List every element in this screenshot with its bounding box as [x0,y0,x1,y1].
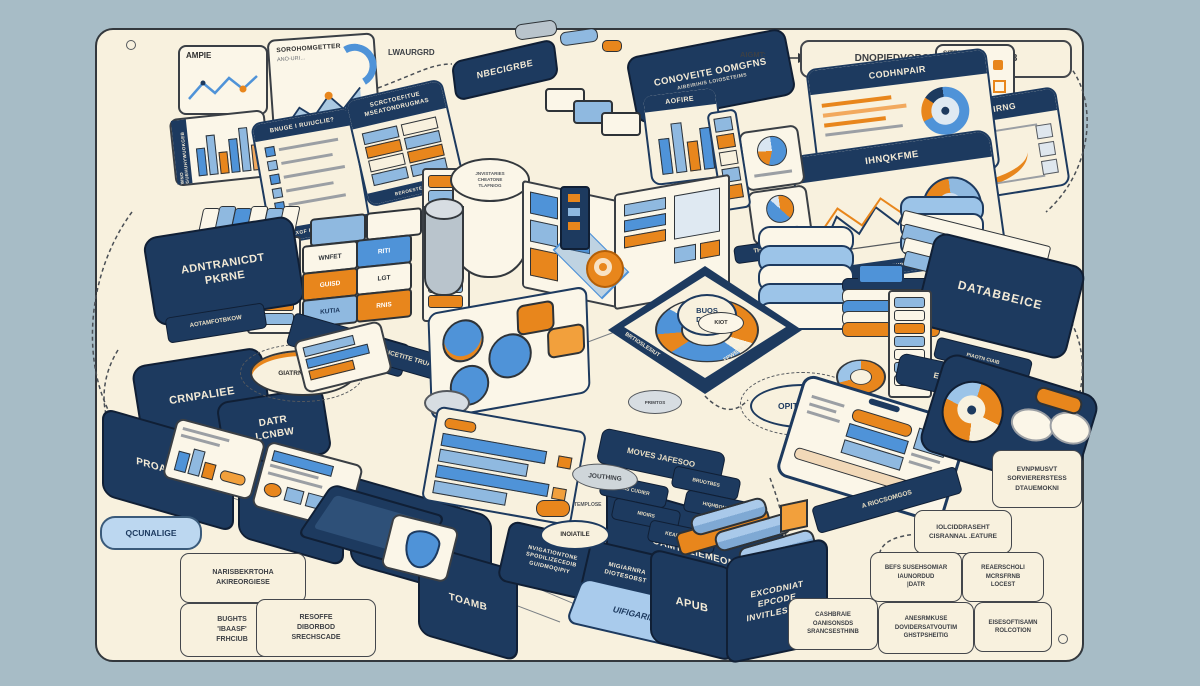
window-card [624,229,666,248]
check-row [272,187,284,199]
pie-icon [764,193,796,225]
reaer-line3: LOCEST [991,581,1015,589]
naris-line2: AKIREORGIESE [216,578,270,588]
eisesoftisamn-note: EISESOFTISAMN ROLCOTION [974,602,1052,652]
befs-line1: BEFS SUSEHSOMIAR [885,564,947,572]
doc-orange-icon [993,80,1006,93]
iolcid-line2: CISRANNAL .EATURE [929,532,997,541]
reaerscholi-note: REAERSCHOLI MCRSFRNB LOCEST [962,552,1044,602]
iolcid-line1: IOLCIDDRASEHT [936,523,989,532]
shield-icon [401,527,443,572]
ampie-label: AMPIE [186,51,211,60]
cash-line1: CASHBRAIE [815,611,851,619]
resoffe-note: RESOFFE DIBORBOD SRECHSCADE [256,599,376,657]
cylinder-small-cap [424,198,464,220]
evnp-line3: DTAUEMOKNI [1015,484,1059,493]
check-row [264,146,276,158]
anes-line3: GHSTPSHEITIG [904,632,949,640]
bughts-line2: 'IBAASF' [217,625,246,635]
server-column [560,186,590,250]
evnpmusvt-note: EVNPMUSVT SORVIERERSTESS DTAUEMOKNI [992,450,1082,508]
aigmt-label: AIGMT: [740,50,766,59]
panel-cell [1035,123,1053,139]
orange-cube [780,499,808,533]
cyl-line3: TLAFNIOG [479,183,502,189]
naris-line1: NARISBEKRTOHA [212,568,273,578]
templose-label: TEMPLOSE [574,502,602,508]
crate-label: RNIS [356,288,412,323]
eise-line1: EISESOFTISAMN [988,619,1037,627]
orange-pill [536,500,570,517]
chart-monitor-title: SOROHOMGETTER [276,43,341,54]
window-card [674,244,696,264]
line-chart-icon [183,65,261,109]
bughts-line3: FRHCIUB [216,635,248,645]
screw-icon [1058,634,1068,644]
bar [658,138,673,175]
reaer-line2: MCRSFRNB [986,573,1020,581]
grid-cell [713,116,733,133]
qcunalige-pill: QCUNALIGE [100,516,202,550]
phone-notch [868,398,900,413]
ampie-chart-card: AMPIE [178,45,268,115]
cylinder-cap-label: JNVISTARIES CHEATONE TLAFNIOG [450,158,530,202]
anes-line2: DOVIDERSATVOUTIM [895,624,957,632]
bar [196,148,208,177]
resoffe-line3: SRECHSCADE [291,633,340,643]
primtos-ellipse: PRIMTOS [628,390,682,414]
window-card [530,247,558,281]
pie-card [738,124,806,192]
evnp-line1: EVNPMUSVT [1017,465,1057,474]
bar-panel-side-label: WNO GUEHUHYWUOKGEB [171,119,193,184]
bar [670,122,687,173]
befs-line2: IAUNORDUD [898,573,935,581]
befs-note: BEFS SUSEHSOMIAR IAUNORDUD |DATR [870,552,962,602]
card-line [754,169,792,177]
deco-capsule [602,40,622,52]
resoffe-line2: DIBORBOD [297,623,335,633]
check-line [284,165,345,178]
eise-line2: ROLCOTION [995,627,1031,635]
fingerprint-icon [586,250,624,288]
cash-line3: SRANCSESTHINB [807,628,859,636]
bar [218,151,229,174]
bar [687,140,702,171]
lwaurgrd-label: LWAURGRD [388,48,435,57]
window-card [674,188,720,240]
panel-cell [1041,159,1059,175]
badge-circle [488,330,533,382]
anes-line1: ANESRMKUSE [905,615,948,623]
window-card [700,240,720,260]
deco-crate [601,112,641,136]
window-card [530,191,558,219]
kiot-ellipse: KIOT [698,312,744,334]
badge-orange-square [547,322,585,359]
reaer-line1: REAERSCHOLI [981,564,1025,572]
inoiatile-ellipse: INOIATILE [540,520,610,550]
bar [238,127,252,172]
cashbraie-note: CASHBRAIE OANISONSDS SRANCSESTHINB [788,598,878,650]
cash-line2: OANISONSDS [813,620,853,628]
resoffe-line1: RESOFFE [299,613,332,623]
badge-circle [442,316,485,366]
bar [206,134,219,175]
pie-icon [755,134,789,168]
grid-cell [719,150,739,167]
panel-cell [1038,141,1056,157]
chart-monitor-subtitle: ANO-URI… [277,55,306,63]
check-line [288,193,346,206]
grid-cell [716,133,736,150]
check-line [279,138,339,151]
bughts-line1: BUGHTS [217,615,247,625]
naris-note: NARISBEKRTOHA AKIREORGIESE [180,553,306,603]
window-card [530,219,558,247]
doc-orange-icon [993,60,1003,70]
iolcid-note: IOLCIDDRASEHT CISRANNAL .EATURE [914,510,1012,554]
check-row [267,160,279,172]
check-line [286,181,334,192]
screw-icon [126,40,136,50]
befs-line3: |DATR [907,581,925,589]
check-row [269,174,281,186]
diagram-canvas: AMPIE SOROHOMGETTER ANO-URI… LWAURGRD NB… [0,0,1200,686]
gauge-icon [919,84,972,137]
anesrmkuse-note: ANESRMKUSE DOVIDERSATVOUTIM GHSTPSHEITIG [878,602,974,654]
evnp-line2: SORVIERERSTESS [1007,474,1066,483]
check-line [281,153,333,164]
dial-icon [934,373,1011,450]
row-line [824,116,886,128]
